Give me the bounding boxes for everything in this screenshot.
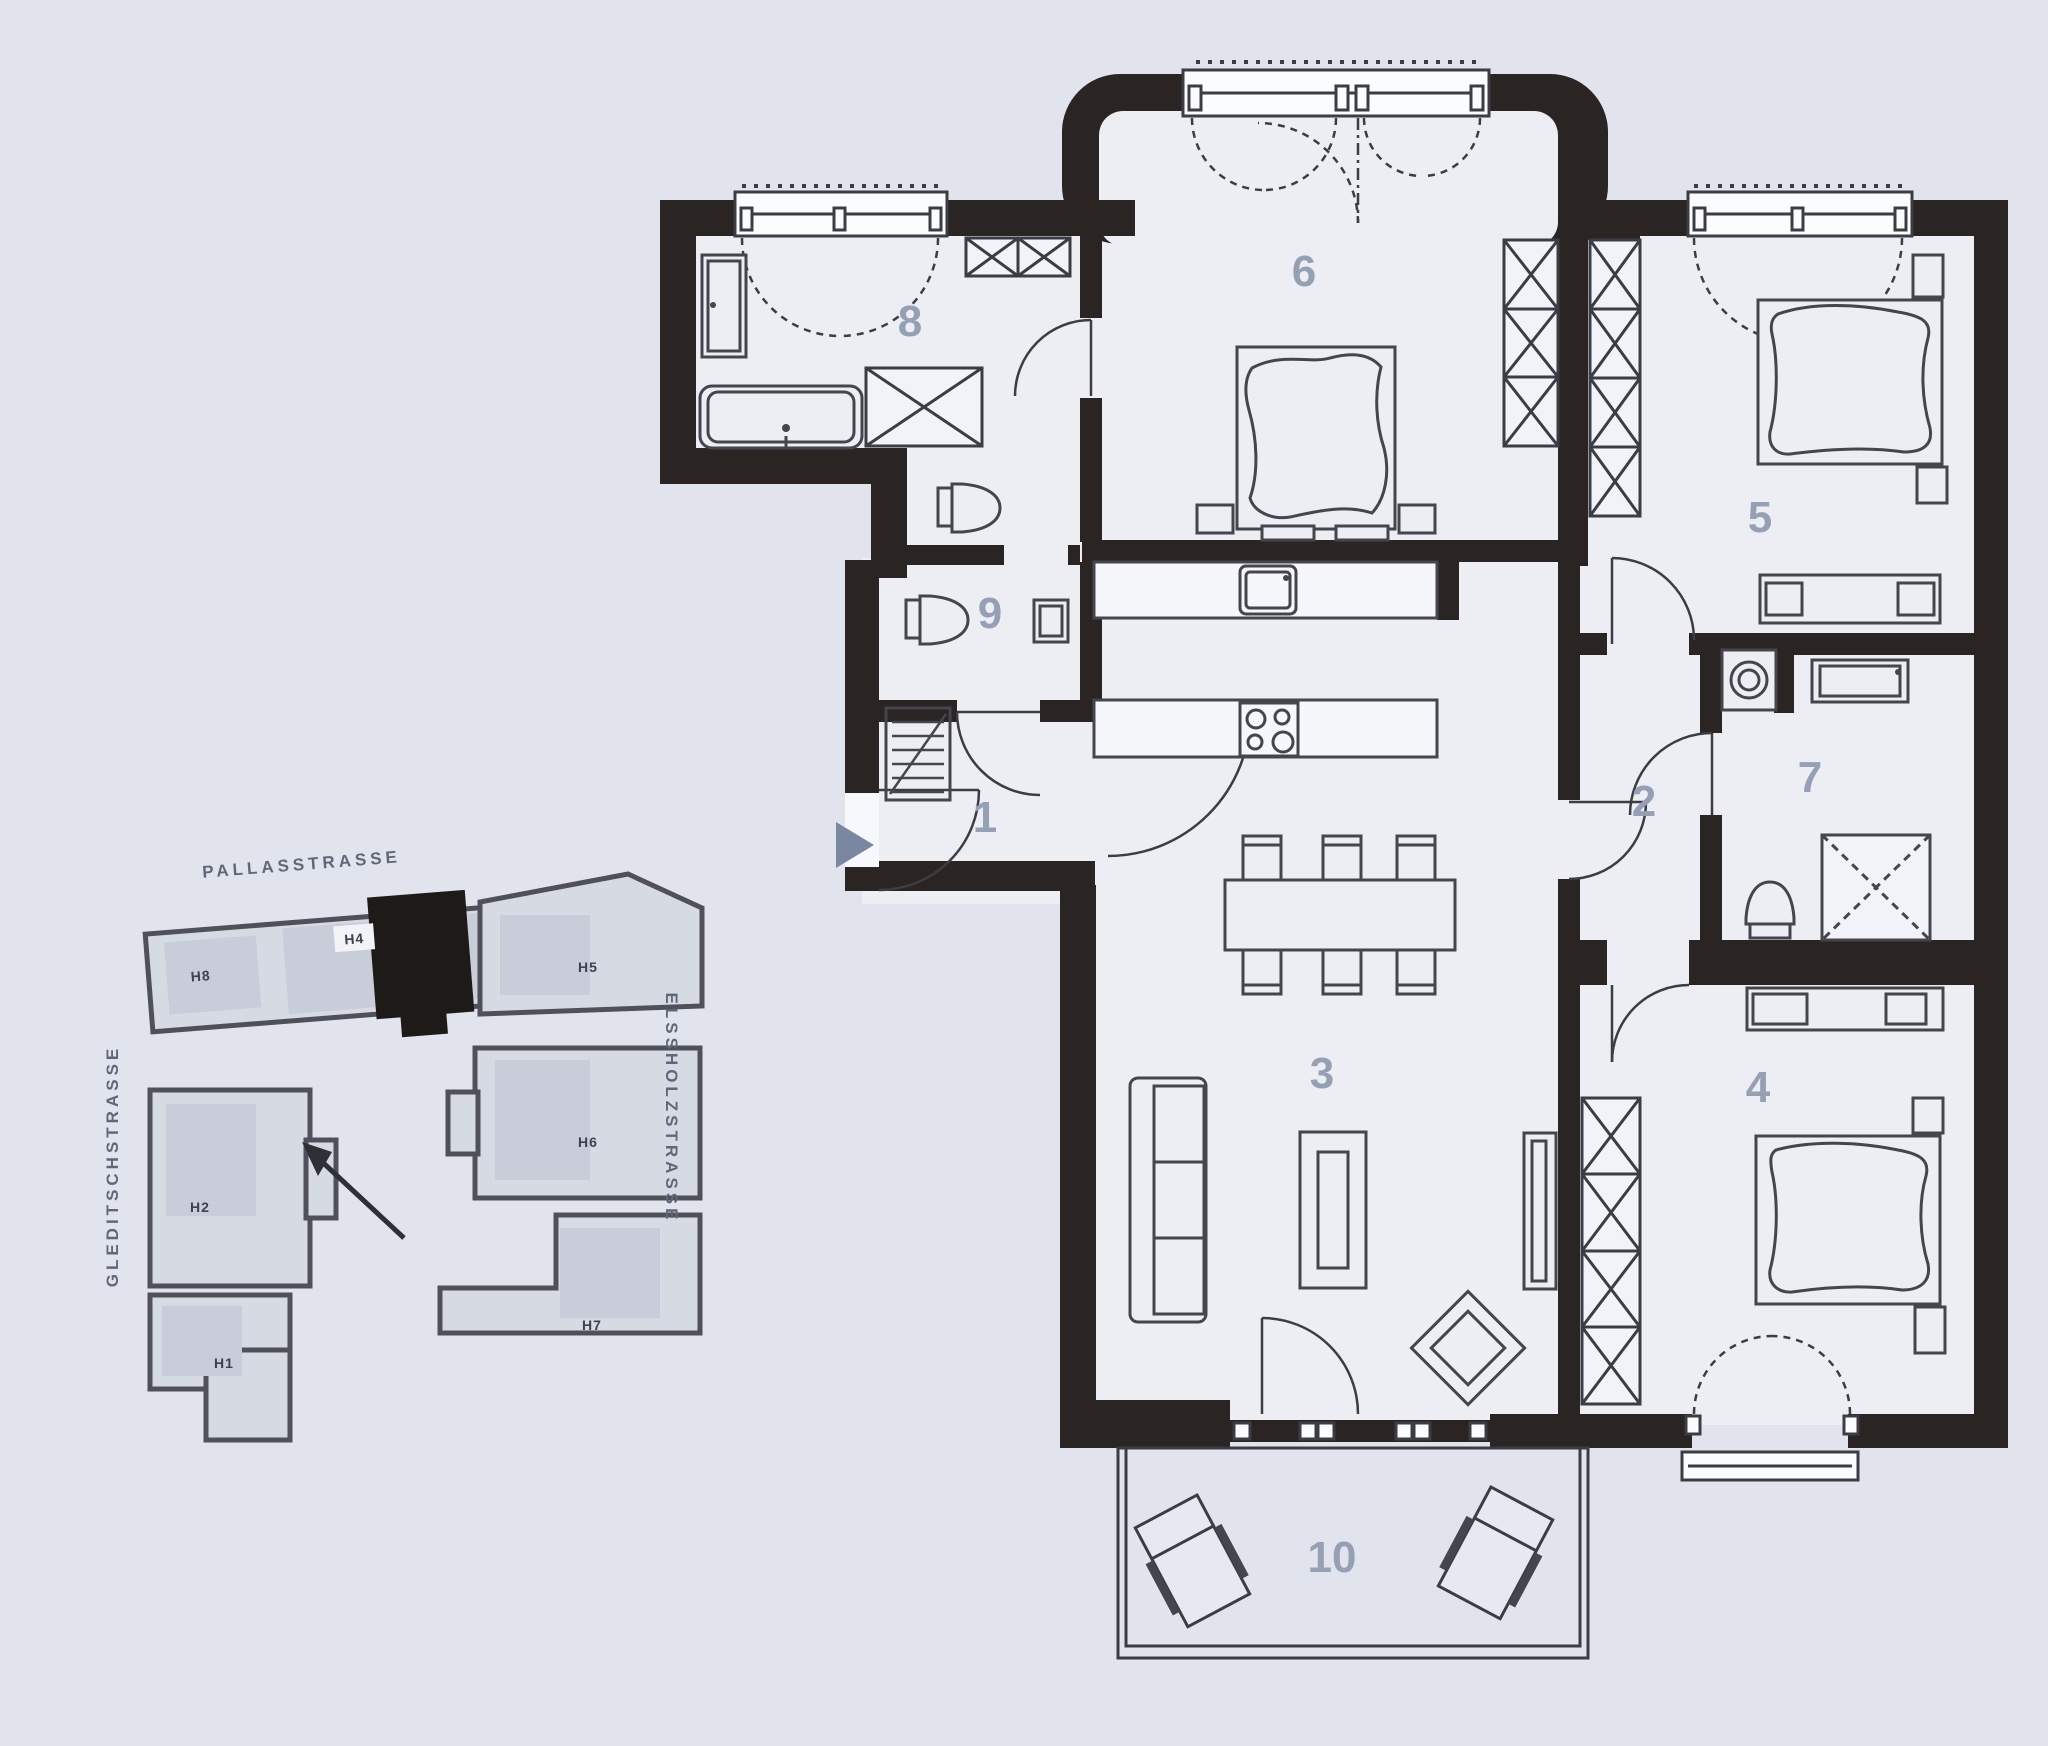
site-plan: H4 H8 H5 H6 H7 H2 H1 PALLASSTRASSE GLEDI… [103,847,702,1440]
room-label-1: 1 [973,793,997,842]
wall [1060,885,1096,1425]
wall [1558,985,1580,1414]
duvet [1770,306,1931,455]
floorplan-drawing: H4 H8 H5 H6 H7 H2 H1 PALLASSTRASSE GLEDI… [0,0,2048,1746]
building-label-h1: H1 [214,1355,234,1371]
window-bathroom8 [735,186,947,236]
coffee-table [1300,1132,1366,1288]
dining-chairs-top [1243,836,1435,880]
wall [1060,1400,1230,1448]
terrace-door-sill [1230,1420,1490,1442]
building-unit [495,1060,590,1180]
building-unit [166,1104,256,1216]
wall [1040,700,1080,722]
apartment-floor-plan: 1 2 3 4 5 6 7 8 9 10 [660,62,2008,1658]
wall [660,448,907,484]
wall-shaft-divider [1558,111,1588,566]
shower [1822,835,1930,940]
washing-machine [1722,650,1776,710]
wardrobe-shaft-room6 [1504,240,1558,446]
wall [1558,566,1580,800]
opening [1607,942,1689,985]
wardrobe-shaft-room5 [1590,240,1640,516]
toilet [906,596,968,644]
dining-chairs-bottom [1243,950,1435,994]
vanity-sink [1812,660,1908,702]
street-label-gleditschstrasse: GLEDITSCHSTRASSE [103,1045,122,1288]
wall [1068,545,1080,565]
wall [905,545,1004,565]
shaft-bathroom8-top [966,238,1070,276]
building-h6-wing [448,1092,478,1154]
highlighted-building-h4-annex [400,1010,448,1038]
wall [871,448,907,578]
wall [1558,633,1607,655]
hand-basin [1034,600,1068,642]
wall [845,560,879,793]
building-label-h6: H6 [578,1134,598,1150]
floorplan-page: H4 H8 H5 H6 H7 H2 H1 PALLASSTRASSE GLEDI… [0,0,2048,1746]
toilet-lobby [938,484,1000,532]
room-label-4: 4 [1746,1063,1771,1112]
dresser [1760,575,1940,623]
building-unit [560,1228,660,1318]
room-label-7: 7 [1798,753,1822,802]
wall [1558,940,1607,985]
stove [1240,703,1298,756]
building-label-h2: H2 [190,1199,210,1215]
wall [879,700,957,722]
nightstand [1917,467,1947,503]
tv-board [1524,1133,1556,1289]
room-label-3: 3 [1310,1049,1334,1098]
bed-bench [1336,526,1388,540]
dining-area [1225,836,1455,994]
wall [1080,396,1102,542]
building-label-h5: H5 [578,959,598,975]
opening [1004,547,1068,565]
toilet [1746,882,1794,938]
window-room4-french-door [1682,1416,1858,1480]
wall [1580,200,1640,240]
bathtub [700,386,862,448]
wall [660,200,696,484]
wall [1558,879,1580,940]
nightstand [1913,1098,1943,1133]
wall [1689,940,1974,985]
room-label-10: 10 [1308,1533,1357,1582]
room-label-6: 6 [1292,247,1316,296]
wall [1700,815,1722,940]
nightstand [1399,505,1435,533]
room-label-9: 9 [978,589,1002,638]
room6-interior-carve [1099,111,1558,246]
opening [1607,635,1689,655]
nightstand [1915,1307,1945,1353]
nightstand [1913,255,1943,297]
kitchen-sink [1240,566,1296,614]
bed-bench [1262,526,1314,540]
wardrobe-shaft-room4 [1582,1098,1640,1404]
wall [845,861,1095,891]
wall [1700,655,1722,733]
street-label-pallasstrasse: PALLASSTRASSE [202,847,402,882]
window-room6 [1183,62,1489,116]
shaft-bathroom8 [866,368,982,446]
wall [1080,200,1102,320]
dining-table [1225,880,1455,950]
opening [1560,800,1580,879]
window-room5 [1688,186,1912,236]
dresser [1747,988,1943,1030]
highlighted-building-h4 [367,890,474,1019]
duvet [1246,355,1387,518]
wall-kitchen [1082,540,1576,562]
room-label-5: 5 [1748,493,1772,542]
building-unit [500,915,590,995]
building-label-h4: H4 [344,930,365,948]
sofa [1130,1078,1206,1322]
building-unit [164,935,261,1014]
building-label-h8: H8 [190,967,211,985]
nightstand [1197,505,1233,533]
lounge-chair-left [1128,1491,1257,1630]
wall [1560,1414,1692,1448]
street-label-elssholzstrasse: ELSSHOLZSTRASSE [662,993,681,1224]
cabinet-handle [710,302,716,308]
room-label-2: 2 [1632,777,1656,826]
duvet [1770,1143,1929,1292]
wall [1974,200,2008,1448]
building-label-h7: H7 [582,1317,602,1333]
lounge-chair-right [1431,1483,1560,1622]
wall [1437,540,1459,620]
room-label-8: 8 [898,297,922,346]
